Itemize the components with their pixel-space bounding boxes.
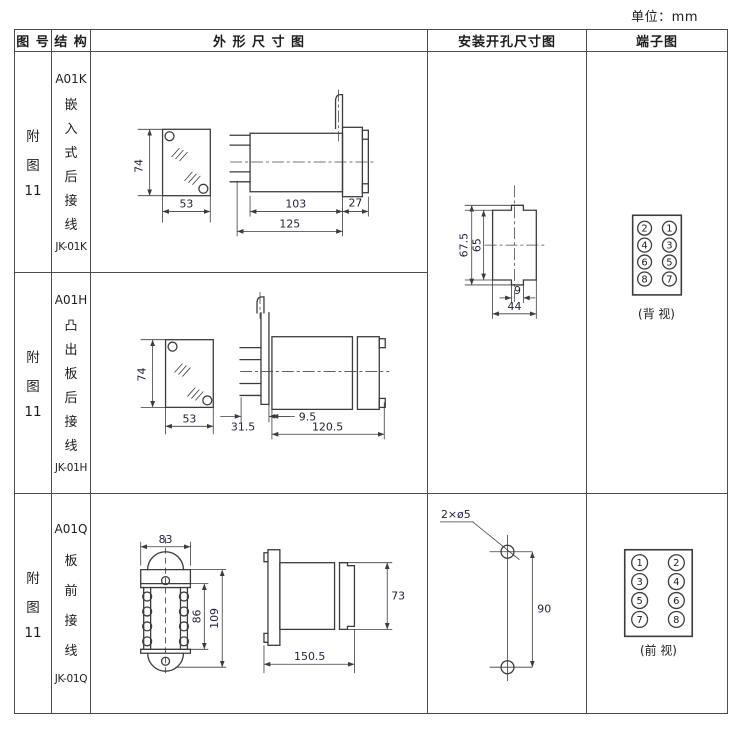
model-label: A01Q	[55, 522, 88, 536]
structure-char: 入	[64, 118, 77, 137]
dim-label-86: 86	[190, 609, 203, 623]
dim-label-90: 90	[537, 602, 551, 615]
header-outline: 外 形 尺 寸 图	[91, 30, 428, 52]
fig-char: 附	[26, 567, 40, 587]
terminal-number: 1	[636, 558, 642, 569]
fig-char: 图	[26, 596, 40, 616]
mounting-drawing-a01q: 2×ø5 90	[428, 494, 587, 713]
terminal-number: 5	[666, 258, 672, 269]
mounting-svg-a01k: 67.5 65 9 44	[428, 52, 586, 493]
structure-char: 板	[64, 363, 77, 382]
terminal-number: 1	[666, 224, 672, 235]
dim-label-2xd5: 2×ø5	[441, 508, 471, 521]
fig-no-cell-a01h: 附 图 11	[15, 273, 52, 494]
structure-char: 线	[64, 214, 77, 233]
dim-label-53: 53	[182, 412, 196, 425]
outline-svg-a01q: 83 86 109 73	[91, 494, 427, 713]
terminal-number: 2	[641, 224, 647, 235]
dim-label-9: 9	[514, 284, 521, 297]
structure-char: 后	[64, 166, 77, 185]
terminal-number: 6	[641, 258, 647, 269]
header-mounting: 安装开孔尺寸图	[428, 30, 587, 52]
spec-table: 图 号 结 构 外 形 尺 寸 图 安装开孔尺寸图 端子图 附 图 11 A01…	[14, 29, 728, 714]
dim-label-44: 44	[507, 300, 521, 313]
terminal-number: 3	[636, 577, 642, 588]
structure-char: 接	[64, 610, 77, 629]
fig-no-cell-a01k: 附 图 11	[15, 52, 52, 273]
page: { "unit_label": "单位：mm", "header": { "fi…	[0, 0, 742, 731]
dim-label-65: 65	[471, 238, 484, 252]
dim-label-73: 73	[391, 590, 405, 603]
terminal-number: 3	[666, 241, 672, 252]
outline-svg-a01k: 74 53 103 27 125	[91, 52, 427, 272]
structure-cell-a01q: A01Q 板 前 接 线 JK-01Q	[52, 494, 91, 713]
structure-char: 嵌	[64, 94, 77, 113]
dim-label-150-5: 150.5	[294, 650, 325, 663]
view-label-front: (前 视)	[640, 643, 677, 657]
structure-cell-a01h: A01H 凸 出 板 后 接 线 JK-01H	[52, 273, 91, 494]
fig-no-cell-a01q: 附 图 11	[15, 494, 52, 713]
terminal-svg-front: 1 2 3 4 5 6 7 8 (前 视)	[587, 494, 727, 713]
model-code: JK-01H	[55, 462, 87, 474]
outline-drawing-a01k: 74 53 103 27 125	[91, 52, 428, 273]
model-code: JK-01Q	[55, 673, 88, 685]
unit-label: 单位：mm	[631, 6, 698, 25]
dim-label-53: 53	[179, 198, 193, 211]
view-label-back: (背 视)	[638, 307, 675, 321]
fig-char: 11	[24, 183, 41, 199]
terminal-number: 6	[673, 596, 679, 607]
terminal-number: 4	[641, 241, 647, 252]
structure-char: 板	[64, 550, 77, 569]
fig-char: 图	[26, 375, 40, 395]
structure-char: 线	[64, 640, 77, 659]
terminal-diagram-back: 2 1 4 3 6 5 8 7 (背 视)	[587, 52, 727, 494]
outline-drawing-a01h: 74 53 31.5 9.5	[91, 273, 428, 494]
dim-label-120-5: 120.5	[312, 420, 343, 433]
dim-label-27: 27	[348, 197, 362, 210]
outline-drawing-a01q: 83 86 109 73	[91, 494, 428, 713]
structure-char: 出	[64, 339, 77, 358]
dim-label-74: 74	[136, 368, 149, 382]
dim-label-103: 103	[285, 198, 306, 211]
mounting-drawing-a01k: 67.5 65 9 44	[428, 52, 587, 494]
dim-label-67-5: 67.5	[458, 233, 471, 257]
model-code: JK-01K	[55, 241, 86, 253]
fig-char: 11	[24, 404, 41, 420]
dim-label-125: 125	[279, 217, 300, 230]
header-fig-no: 图 号	[15, 30, 52, 52]
dim-label-109: 109	[208, 608, 221, 629]
terminal-number: 5	[636, 596, 642, 607]
model-label: A01H	[55, 293, 88, 307]
outline-svg-a01h: 74 53 31.5 9.5	[91, 273, 427, 493]
dim-label-31-5: 31.5	[231, 420, 255, 433]
header-structure: 结 构	[52, 30, 91, 52]
terminal-number: 4	[673, 577, 679, 588]
structure-char: 线	[64, 435, 77, 454]
terminal-number: 2	[673, 558, 679, 569]
terminal-diagram-front: 1 2 3 4 5 6 7 8 (前 视)	[587, 494, 727, 713]
structure-char: 式	[64, 142, 77, 161]
dim-label-83: 83	[159, 533, 173, 546]
terminal-number: 8	[673, 615, 679, 626]
structure-char: 凸	[64, 315, 77, 334]
terminal-number: 7	[636, 615, 642, 626]
mounting-svg-a01q: 2×ø5 90	[428, 494, 586, 713]
structure-char: 接	[64, 411, 77, 430]
fig-char: 附	[26, 346, 40, 366]
dim-label-74: 74	[133, 159, 146, 173]
structure-char: 接	[64, 190, 77, 209]
structure-cell-a01k: A01K 嵌 入 式 后 接 线 JK-01K	[52, 52, 91, 273]
fig-char: 附	[26, 125, 40, 145]
header-terminal: 端子图	[587, 30, 727, 52]
fig-char: 11	[24, 625, 41, 641]
structure-char: 后	[64, 387, 77, 406]
structure-char: 前	[64, 580, 77, 599]
fig-char: 图	[26, 154, 40, 174]
terminal-svg-back: 2 1 4 3 6 5 8 7 (背 视)	[587, 52, 727, 493]
terminal-number: 7	[666, 274, 672, 285]
terminal-number: 8	[641, 274, 647, 285]
model-label: A01K	[55, 72, 86, 86]
